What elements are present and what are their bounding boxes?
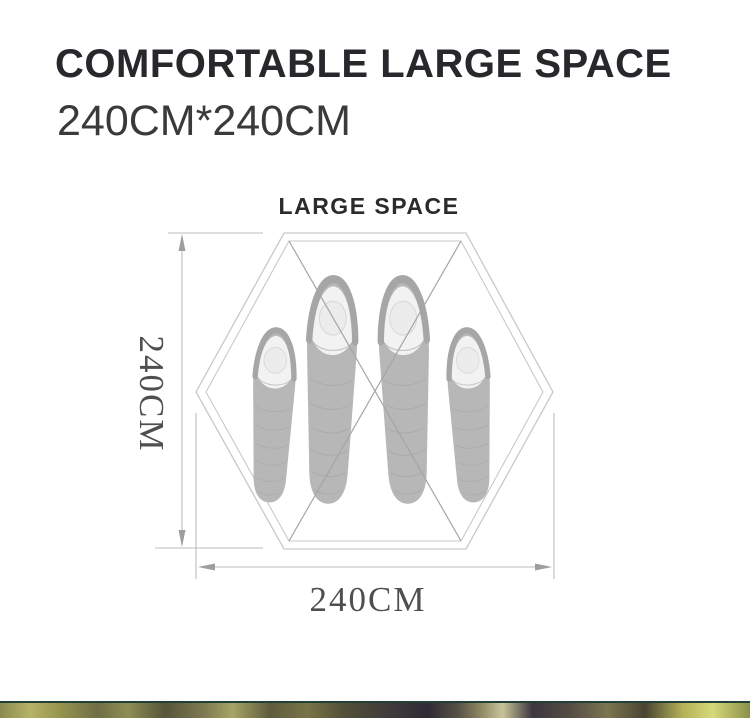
height-dimension-label: 240CM [131, 336, 171, 453]
width-dimension [196, 413, 554, 579]
arrow-down-icon [179, 530, 186, 547]
arrow-left-icon [198, 564, 215, 571]
sleeping-bag-4 [445, 326, 495, 504]
height-dimension [155, 233, 263, 548]
sleeping-bag-1 [248, 326, 298, 504]
arrow-up-icon [179, 234, 186, 251]
sleeping-bag-3 [377, 274, 433, 505]
page: COMFORTABLE LARGE SPACE 240CM*240CM LARG… [0, 0, 750, 718]
width-dimension-label: 240CM [310, 580, 427, 620]
arrow-right-icon [535, 564, 552, 571]
sleeping-bag-2 [303, 274, 359, 505]
bottom-photo-strip [0, 701, 750, 718]
